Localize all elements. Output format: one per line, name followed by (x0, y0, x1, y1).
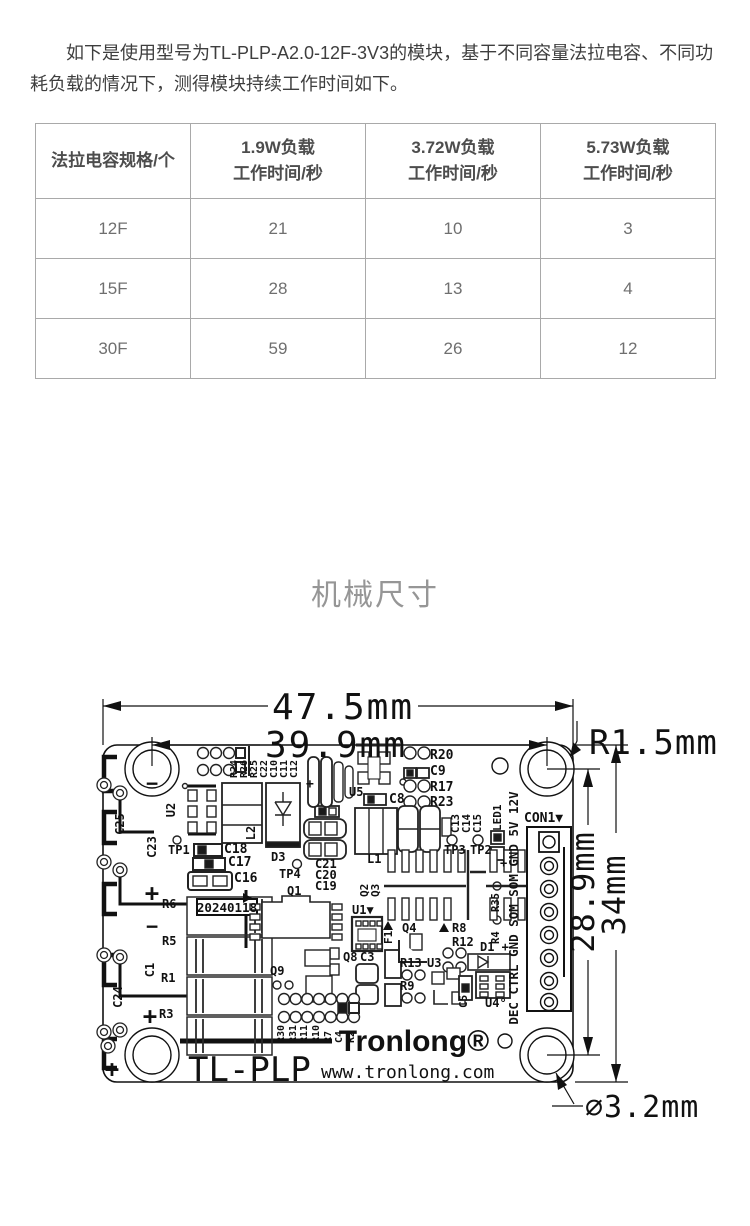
pcb-label-C12: C12 (289, 760, 300, 778)
pcb-label-Q3: Q3 (369, 884, 382, 897)
pcb-label-R7: R7 (323, 1031, 334, 1043)
header-cell-load1: 1.9W负载工作时间/秒 (191, 124, 366, 199)
pcb-label-R3: R3 (159, 1007, 173, 1021)
pcb-label-dim-width-holes: 39.9mm (265, 725, 407, 766)
pcb-label-date-code: 20240118 (197, 900, 257, 915)
pcb-label-D3: D3 (271, 850, 285, 864)
pcb-label-R13: R13 (400, 956, 422, 970)
pcb-label-Q8: Q8 (343, 950, 357, 964)
pcb-label-R8: R8 (452, 921, 466, 935)
runtime-table: 法拉电容规格/个 1.9W负载工作时间/秒 3.72W负载工作时间/秒 5.73… (35, 123, 716, 379)
pcb-label-R20: R20 (430, 748, 454, 763)
pcb-label-TP4: TP4 (279, 867, 301, 881)
pcb-label-plus-c12: + (306, 777, 314, 792)
pcb-label-TP1: TP1 (168, 843, 190, 857)
table-cell: 4 (541, 259, 716, 319)
pcb-label-R1: R1 (161, 971, 175, 985)
table-cell: 30F (36, 319, 191, 379)
pcb-label-minus-2: − (146, 914, 158, 938)
pcb-label-R9: R9 (400, 979, 414, 993)
pcb-label-C17: C17 (228, 855, 251, 870)
pcb-label-brand: Tronlong® (339, 1025, 489, 1058)
pcb-mechanical-drawing: 47.5mm39.9mmR1.5mm28.9mm34mm∅3.2mmTronlo… (0, 650, 750, 1226)
table-cell: 10 (366, 199, 541, 259)
pcb-label-dim-corner-radius: R1.5mm (589, 723, 718, 763)
pcb-label-R11: R11 (299, 1025, 310, 1043)
table-cell: 3 (541, 199, 716, 259)
table-cell: 12 (541, 319, 716, 379)
table-header-row: 法拉电容规格/个 1.9W负载工作时间/秒 3.72W负载工作时间/秒 5.73… (36, 124, 716, 199)
pcb-label-C5: C5 (457, 995, 470, 1008)
pcb-label-C19: C19 (315, 879, 337, 893)
table-cell: 21 (191, 199, 366, 259)
pcb-label-C3: C3 (360, 950, 374, 964)
pcb-label-C9: C9 (430, 764, 446, 779)
pcb-label-C24: C24 (111, 986, 125, 1008)
pcb-label-minus-1: − (146, 771, 158, 795)
table-cell: 15F (36, 259, 191, 319)
pcb-label-F1: F1 (382, 930, 395, 944)
pcb-label-plus-1: + (145, 879, 159, 907)
pcb-label-con1: CON1▼ (524, 811, 563, 826)
pcb-label-U2: U2 (164, 803, 178, 817)
table-row: 30F 59 26 12 (36, 319, 716, 379)
pcb-label-R30: R30 (276, 1025, 287, 1043)
table-cell: 28 (191, 259, 366, 319)
pcb-label-dim-hole-diameter: ∅3.2mm (585, 1090, 699, 1125)
pcb-label-R31: R31 (288, 1025, 299, 1043)
pcb-label-C1: C1 (143, 963, 157, 977)
table-row: 12F 21 10 3 (36, 199, 716, 259)
pcb-label-D1: D1 + (480, 940, 509, 954)
pcb-label-U5: U5 (349, 785, 363, 799)
pcb-label-C23: C23 (145, 836, 159, 858)
pcb-label-R12: R12 (452, 935, 474, 949)
pcb-label-LED1: LED1 (491, 804, 504, 831)
header-cell-load2: 3.72W负载工作时间/秒 (366, 124, 541, 199)
pcb-label-website: www.tronlong.com (321, 1062, 494, 1083)
pcb-label-U3: U3 (427, 956, 441, 970)
table-cell: 12F (36, 199, 191, 259)
pcb-label-Q4: Q4 (402, 921, 416, 935)
pcb-label-dim-width-outer: 47.5mm (272, 687, 414, 728)
pcb-label-Q1: Q1 (287, 884, 301, 898)
table-cell: 26 (366, 319, 541, 379)
pcb-label-R2: R2 (346, 1031, 357, 1043)
pcb-label-dim-height-outer: 34mm (595, 854, 633, 935)
pcb-label-con1-pin-names: DEC CTRL GND SOM SOM GND 5V 12V (506, 791, 521, 1025)
pcb-label-C25: C25 (113, 813, 127, 835)
pcb-label-TP2: TP2 (470, 843, 492, 857)
header-cell-spec: 法拉电容规格/个 (36, 124, 191, 199)
pcb-label-C15: C15 (472, 814, 484, 833)
pcb-label-model: TL-PLP (188, 1050, 311, 1090)
pcb-label-TP3: TP3 (444, 843, 466, 857)
pcb-label-C16: C16 (234, 871, 258, 886)
table-cell: 13 (366, 259, 541, 319)
pcb-label-C8: C8 (389, 792, 405, 807)
pcb-label-R5: R5 (162, 934, 176, 948)
header-cell-load3: 5.73W负载工作时间/秒 (541, 124, 716, 199)
section-title: 机械尺寸 (0, 570, 750, 614)
intro-paragraph: 如下是使用型号为TL-PLP-A2.0-12F-3V3的模块，基于不同容量法拉电… (30, 38, 722, 100)
pcb-label-U1: U1▼ (352, 903, 374, 917)
pcb-label-plus-3: + (105, 1055, 119, 1083)
pcb-label-R10: R10 (311, 1025, 322, 1043)
pcb-label-R6: R6 (162, 897, 176, 911)
pcb-label-R17: R17 (430, 780, 453, 795)
pcb-label-L2: L2 (244, 826, 258, 840)
table-row: 15F 28 13 4 (36, 259, 716, 319)
pcb-label-U4: U4° (485, 996, 507, 1010)
pcb-label-R35: R35 (490, 893, 502, 912)
pcb-label-L1: L1 (367, 852, 381, 866)
pcb-label-plus-2: + (143, 1002, 157, 1030)
pcb-label-C4: C4 (334, 1031, 345, 1043)
pcb-label-Q9: Q9 (270, 964, 284, 978)
pcb-label-R23: R23 (430, 795, 453, 810)
table-cell: 59 (191, 319, 366, 379)
